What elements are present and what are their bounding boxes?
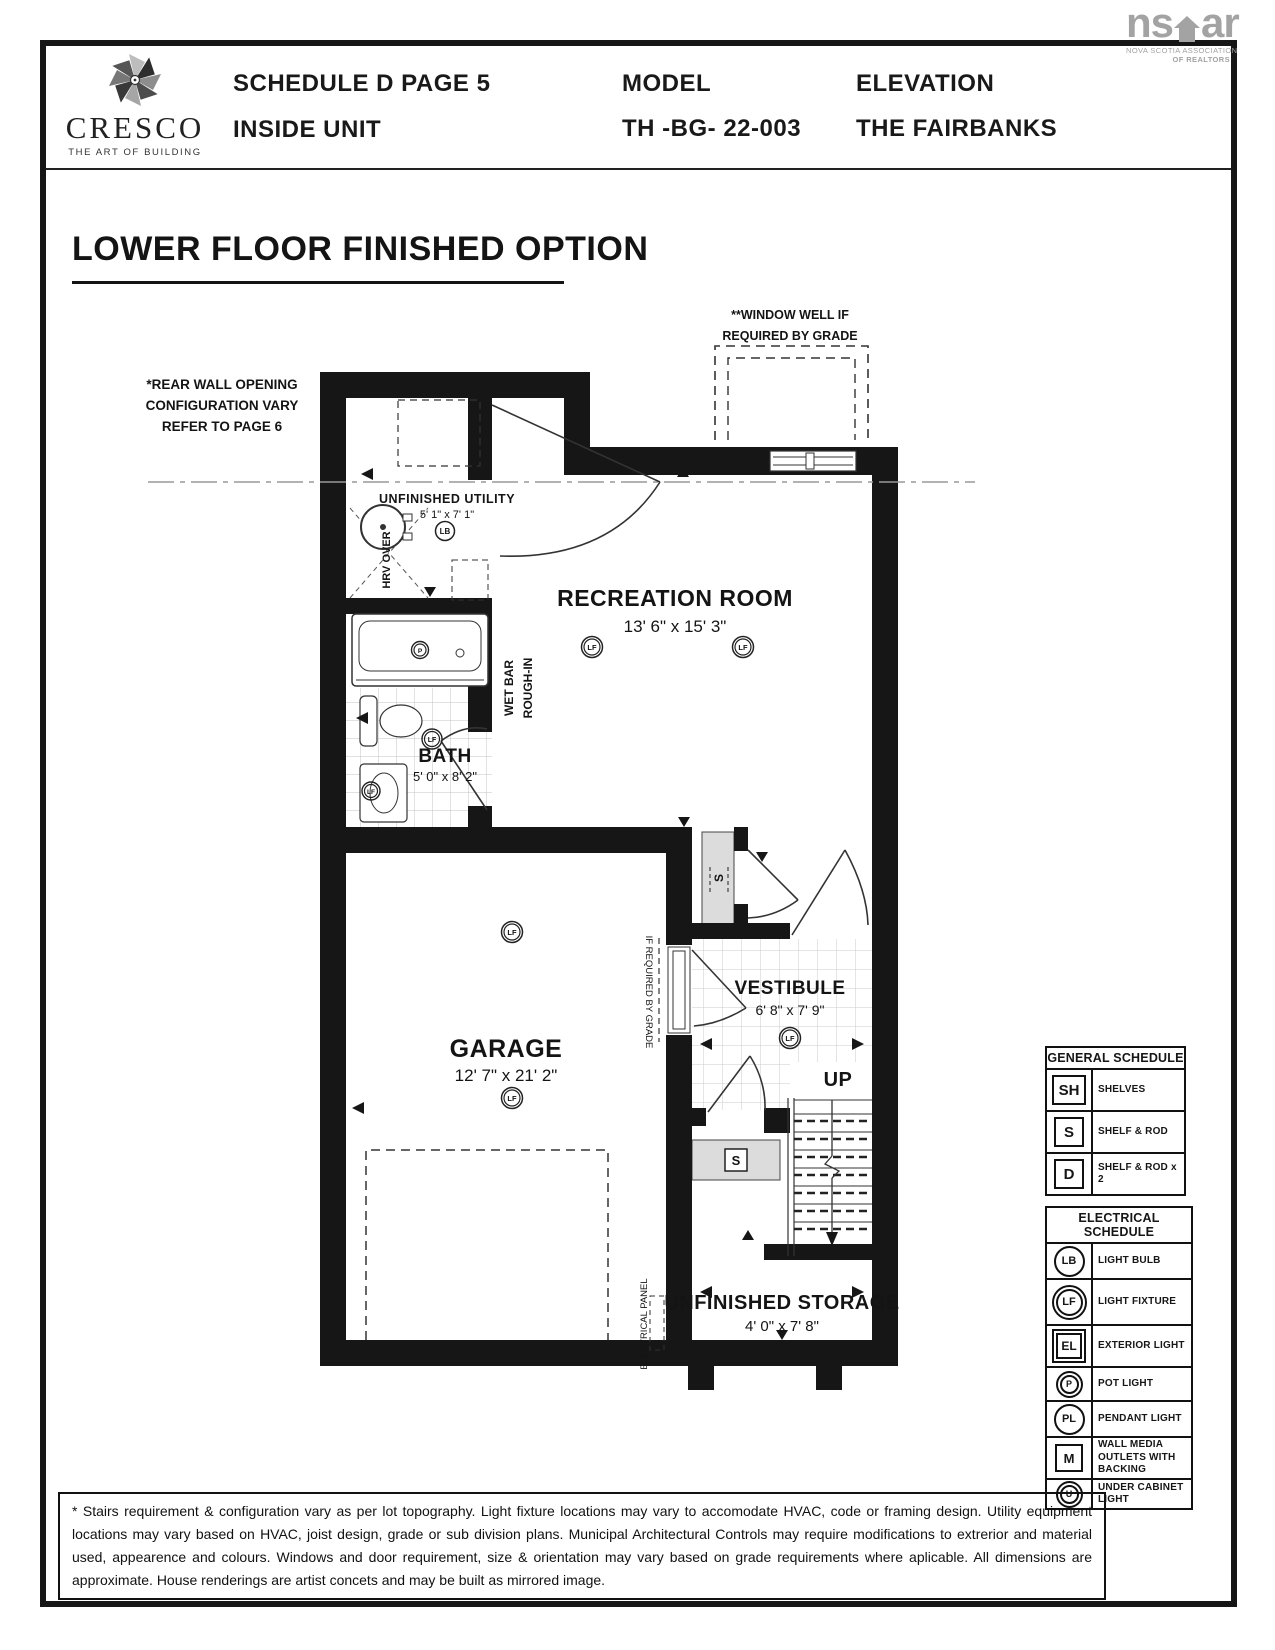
lf-symbol-icon: LF xyxy=(1056,1289,1083,1316)
stair-arrow xyxy=(826,1232,838,1246)
nsar-house-icon xyxy=(1174,14,1200,44)
general-schedule-table: GENERAL SCHEDULE SH SHELVES S SHELF & RO… xyxy=(1045,1046,1186,1196)
svg-text:LF: LF xyxy=(738,643,748,652)
el-symbol-icon: EL xyxy=(1056,1333,1082,1359)
lf-symbol: LF xyxy=(362,782,380,800)
rear-window xyxy=(770,451,856,471)
window-well-outer xyxy=(715,346,868,440)
svg-text:12' 7" x 21' 2": 12' 7" x 21' 2" xyxy=(455,1066,558,1085)
svg-text:5' 1" x 7' 1": 5' 1" x 7' 1" xyxy=(420,509,474,521)
schedule-page: { "header": { "brand_name": "CRESCO", "b… xyxy=(0,0,1275,1650)
up-label: UP xyxy=(824,1069,853,1091)
svg-text:P: P xyxy=(418,648,423,655)
nsar-ar-text: ar xyxy=(1201,2,1239,44)
nsar-subtext-2: OF REALTORS xyxy=(1126,55,1230,64)
nsar-subtext-1: NOVA SCOTIA ASSOCIATION xyxy=(1126,46,1256,55)
lb-symbol-icon: LB xyxy=(1054,1246,1085,1277)
d-symbol-icon: D xyxy=(1054,1159,1084,1189)
stairs xyxy=(788,1098,872,1256)
svg-text:S: S xyxy=(712,874,726,882)
svg-text:5' 0" x 8' 2": 5' 0" x 8' 2" xyxy=(413,769,477,784)
rear-wall-note: *REAR WALL OPENING xyxy=(146,377,297,392)
nsar-ns-text: ns xyxy=(1126,2,1173,44)
svg-text:ROUGH-IN: ROUGH-IN xyxy=(521,658,535,719)
disclaimer-text: * Stairs requirement & configuration var… xyxy=(58,1492,1106,1600)
garage-label: GARAGE xyxy=(450,1035,563,1063)
shelf-s-symbol: S xyxy=(725,1149,747,1171)
legend-row: LB LIGHT BULB xyxy=(1045,1244,1193,1280)
lf-symbol: LF xyxy=(502,922,523,943)
electrical-panel-note: ELECTRICAL PANEL xyxy=(639,1278,650,1369)
window-well-note: **WINDOW WELL IF xyxy=(731,308,849,322)
legend-row: SH SHELVES xyxy=(1045,1070,1186,1112)
general-schedule-title: GENERAL SCHEDULE xyxy=(1045,1046,1186,1070)
entry-door xyxy=(792,850,868,935)
closet-door xyxy=(748,850,798,918)
svg-text:LB: LB xyxy=(440,527,451,536)
electrical-schedule-title: ELECTRICAL SCHEDULE xyxy=(1045,1206,1193,1244)
lb-symbol: LB xyxy=(436,522,455,541)
svg-text:LF: LF xyxy=(367,789,375,796)
hrv-note: HRV OVER xyxy=(381,531,393,588)
pl-symbol-icon: PL xyxy=(1054,1404,1085,1435)
grade-window xyxy=(659,938,690,1042)
legend-row: PL PENDANT LIGHT xyxy=(1045,1402,1193,1438)
nsar-logo: ns ar NOVA SCOTIA ASSOCIATION OF REALTOR… xyxy=(1126,2,1256,64)
recreation-room-label: RECREATION ROOM xyxy=(557,585,793,611)
svg-text:LF: LF xyxy=(428,737,437,744)
rear-opening-box xyxy=(398,400,480,466)
lf-symbol: LF xyxy=(582,637,603,658)
grade-note: IF REQUIRED BY GRADE xyxy=(643,936,654,1049)
svg-text:REFER TO PAGE 6: REFER TO PAGE 6 xyxy=(162,419,283,434)
vestibule-label: VESTIBULE xyxy=(734,978,845,999)
svg-text:LF: LF xyxy=(507,928,517,937)
window-well-inner xyxy=(728,358,855,440)
svg-text:6' 8" x 7' 9": 6' 8" x 7' 9" xyxy=(756,1002,825,1018)
wet-bar-note: WET BAR xyxy=(502,660,516,716)
walls xyxy=(320,372,898,1390)
svg-text:LF: LF xyxy=(785,1034,795,1043)
sh-symbol-icon: SH xyxy=(1052,1075,1086,1105)
m-symbol-icon: M xyxy=(1055,1444,1083,1472)
svg-text:13' 6" x 15' 3": 13' 6" x 15' 3" xyxy=(624,617,727,636)
s-symbol-icon: S xyxy=(1054,1117,1084,1147)
legend-row: D SHELF & ROD x 2 xyxy=(1045,1154,1186,1196)
legend-row: LF LIGHT FIXTURE xyxy=(1045,1280,1193,1326)
bath-label: BATH xyxy=(418,746,471,767)
legend-row: M WALL MEDIA OUTLETS WITH BACKING xyxy=(1045,1438,1193,1480)
utility-room-label: UNFINISHED UTILITY xyxy=(379,492,515,506)
svg-text:REQUIRED BY GRADE: REQUIRED BY GRADE xyxy=(722,329,857,343)
garage-door-dashed xyxy=(366,1150,608,1340)
svg-text:LF: LF xyxy=(587,643,597,652)
legend-row: S SHELF & ROD xyxy=(1045,1112,1186,1154)
legend-row: P POT LIGHT xyxy=(1045,1368,1193,1402)
svg-text:LF: LF xyxy=(507,1094,517,1103)
svg-text:4' 0" x 7' 8": 4' 0" x 7' 8" xyxy=(745,1318,819,1335)
lf-symbol: LF xyxy=(502,1088,523,1109)
electrical-schedule-table: ELECTRICAL SCHEDULE LB LIGHT BULB LF LIG… xyxy=(1045,1206,1193,1510)
svg-text:CONFIGURATION VARY: CONFIGURATION VARY xyxy=(146,398,299,413)
pot-light-symbol: P xyxy=(412,642,429,659)
storage-label: UNFINISHED STORAGE xyxy=(664,1292,899,1314)
pot-light-symbol-icon: P xyxy=(1060,1375,1079,1394)
legend-row: EL EXTERIOR LIGHT xyxy=(1045,1326,1193,1368)
lf-symbol: LF xyxy=(733,637,754,658)
svg-text:S: S xyxy=(732,1153,741,1168)
